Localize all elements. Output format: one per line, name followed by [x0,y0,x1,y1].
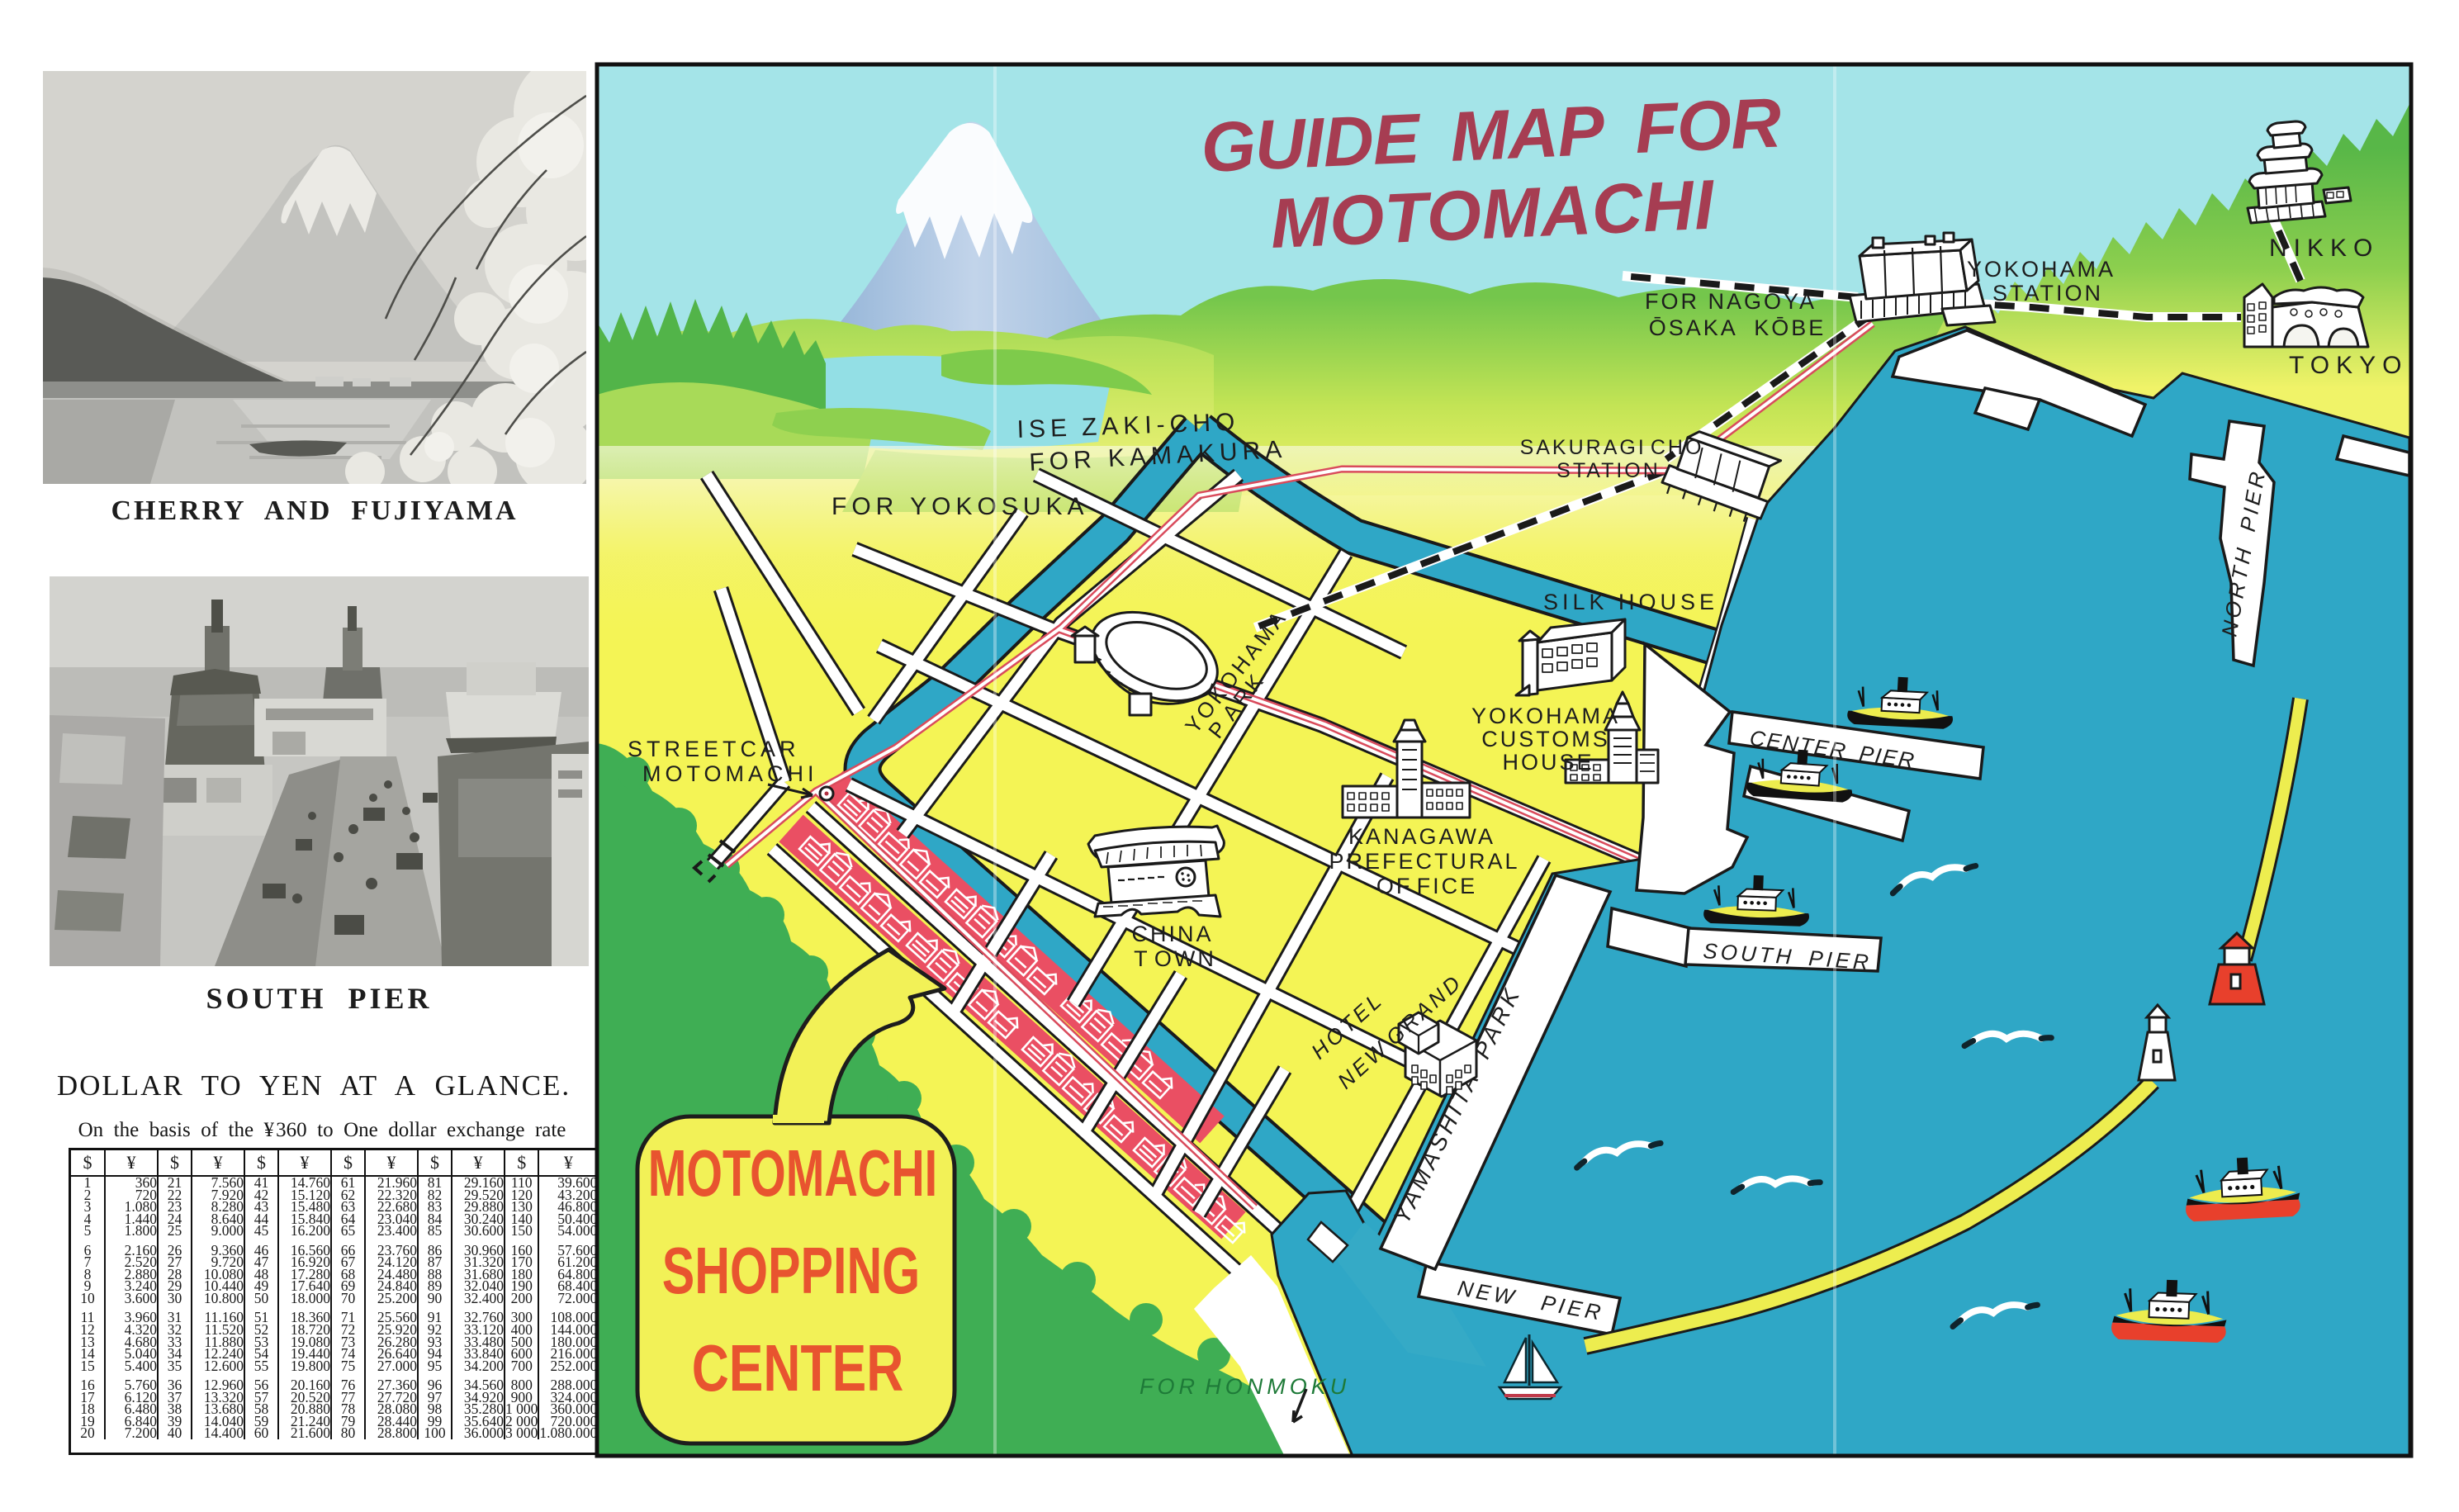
svg-text:ŌSAKA KŌBE: ŌSAKA KŌBE [1649,315,1826,340]
svg-text:STATION: STATION [1992,281,2103,306]
svg-text:STREETCAR: STREETCAR [628,737,800,761]
svg-text:MOTOMACHI: MOTOMACHI [642,761,818,786]
svg-text:YOKOHAMA: YOKOHAMA [1967,257,2115,282]
svg-text:FOR HONMOKU: FOR HONMOKU [1139,1374,1350,1399]
svg-text:TOKYO: TOKYO [2289,352,2408,379]
svg-text:FOR NAGOYA: FOR NAGOYA [1645,289,1817,314]
svg-text:CHINA: CHINA [1131,922,1213,946]
svg-text:NIKKO: NIKKO [2269,235,2379,262]
svg-text:T OWN: T OWN [1134,946,1216,971]
svg-text:OF FICE: OF FICE [1376,874,1477,898]
svg-text:MOTOMACHI: MOTOMACHI [648,1135,937,1210]
svg-text:SAKURAGI CHO: SAKURAGI CHO [1520,436,1704,459]
svg-text:FOR YOKOSUKA: FOR YOKOSUKA [832,493,1089,520]
svg-text:YOKOHAMA: YOKOHAMA [1471,704,1620,728]
svg-text:SILK HOUSE: SILK HOUSE [1543,590,1718,614]
svg-text:KANAGAWA: KANAGAWA [1348,824,1495,849]
svg-text:PREFECTURAL: PREFECTURAL [1329,849,1519,874]
svg-text:CUSTOMS: CUSTOMS [1481,727,1610,751]
svg-text:HOUSE: HOUSE [1502,750,1594,775]
svg-text:STATION: STATION [1556,459,1661,482]
svg-text:CENTER: CENTER [692,1332,904,1405]
svg-text:SHOPPING: SHOPPING [662,1233,920,1307]
